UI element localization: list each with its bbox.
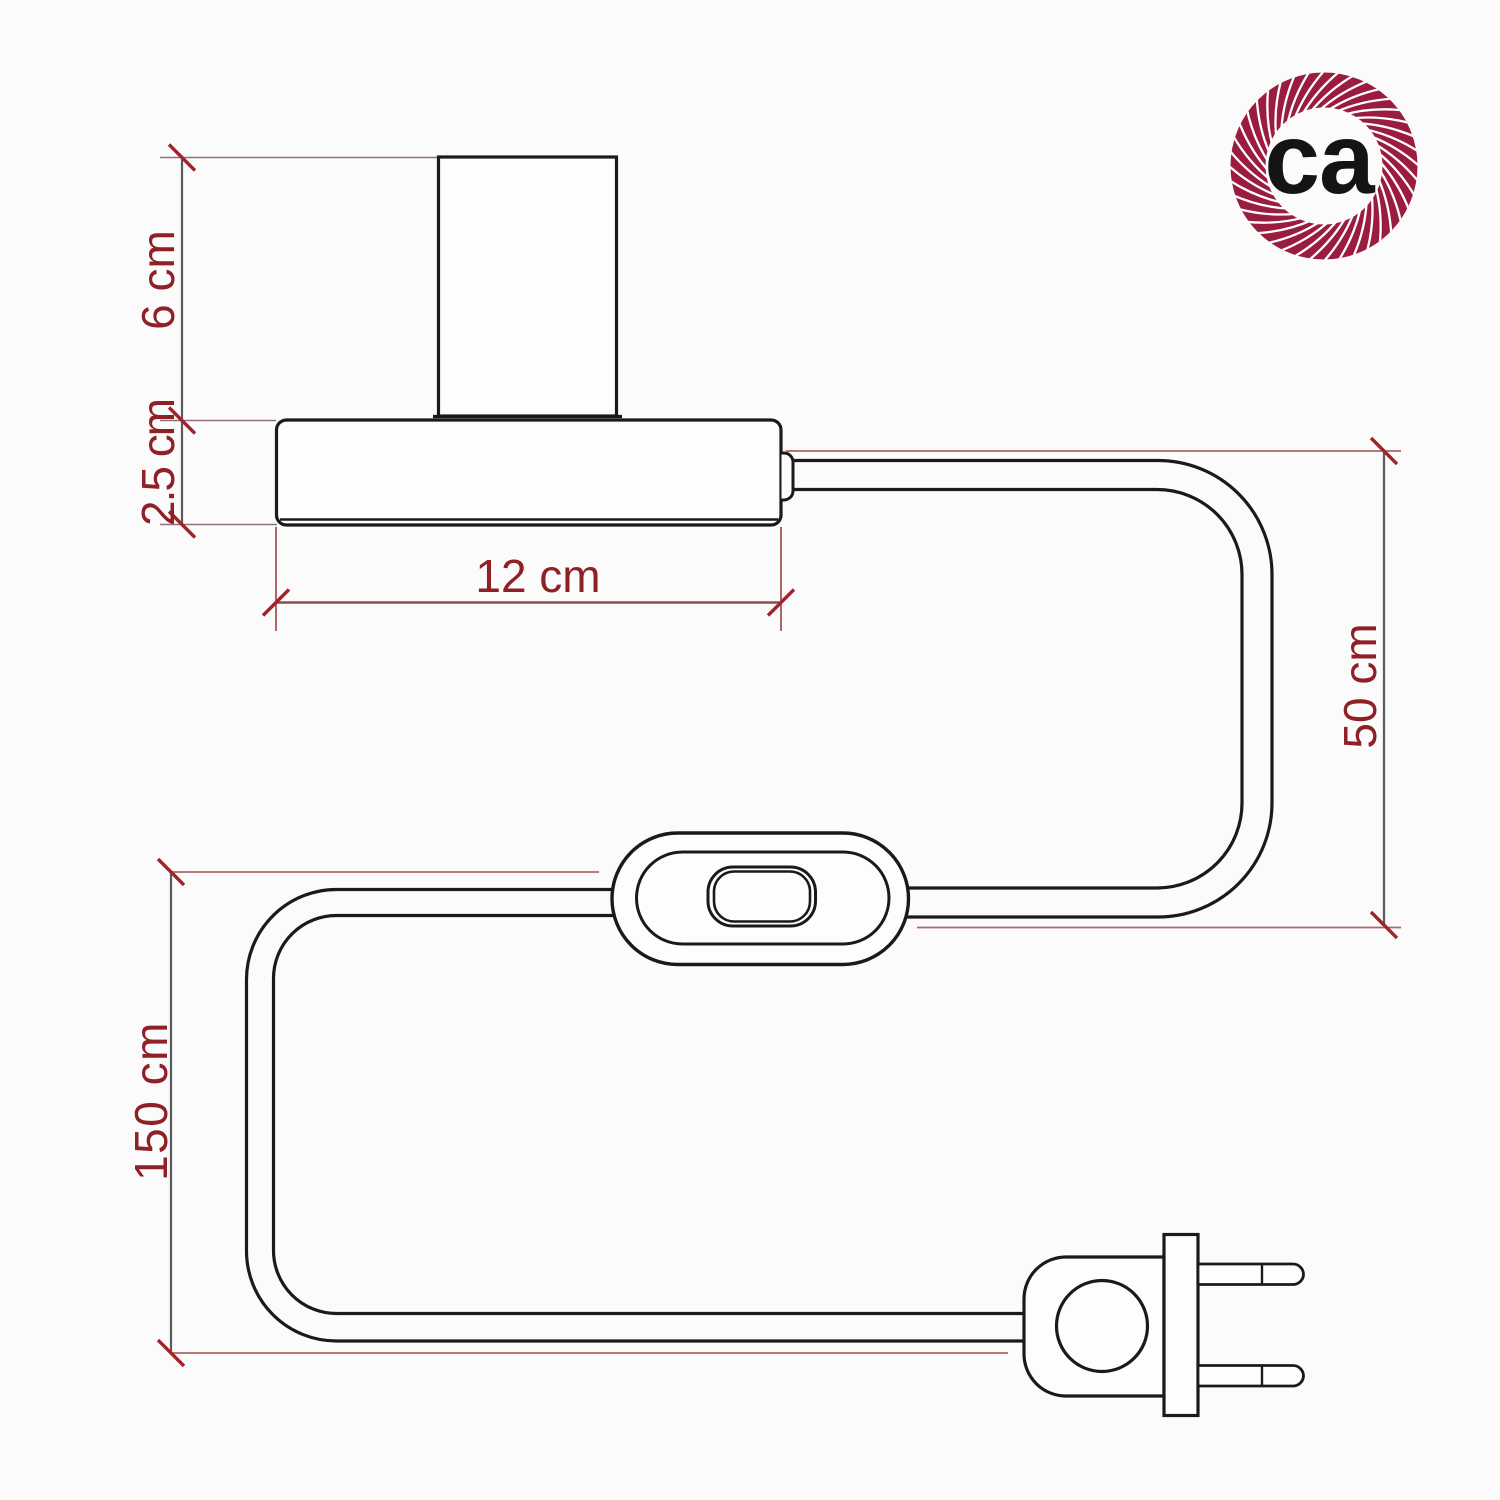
svg-text:2.5 cm: 2.5 cm xyxy=(132,400,184,526)
svg-text:50 cm: 50 cm xyxy=(1334,623,1386,748)
svg-text:12 cm: 12 cm xyxy=(475,550,600,602)
svg-text:6 cm: 6 cm xyxy=(132,230,184,330)
svg-text:150 cm: 150 cm xyxy=(125,1021,177,1181)
svg-text:ca: ca xyxy=(1264,103,1376,215)
